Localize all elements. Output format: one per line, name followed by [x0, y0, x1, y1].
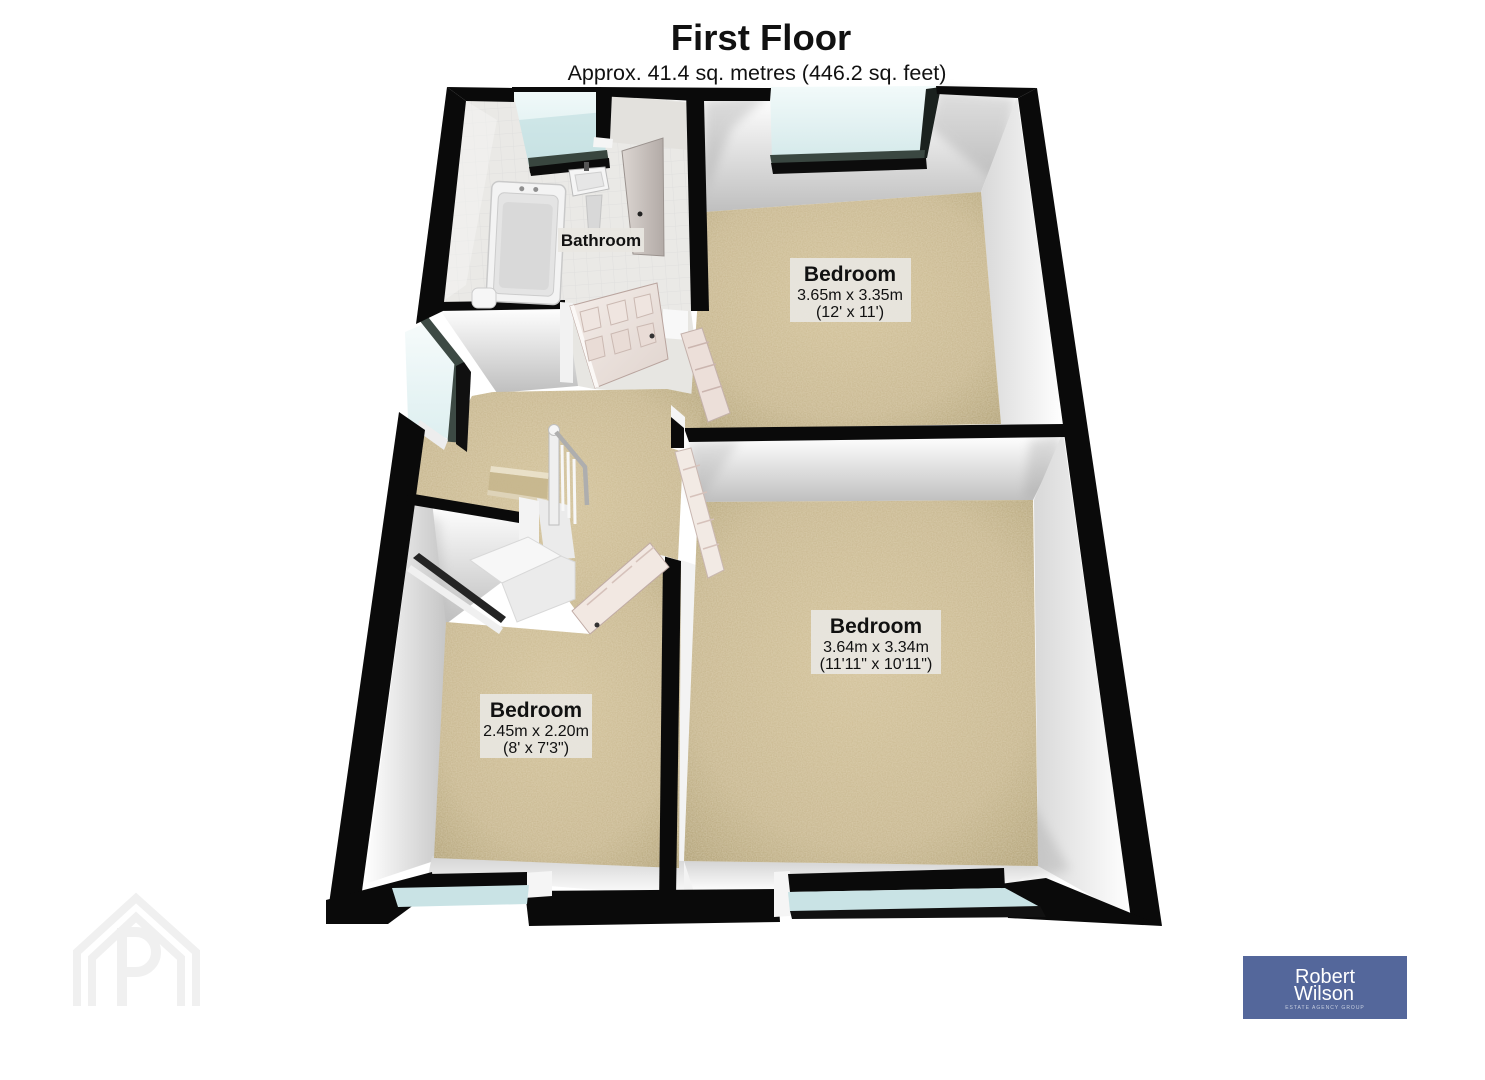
- svg-text:ESTATE AGENCY GROUP: ESTATE AGENCY GROUP: [1285, 1005, 1365, 1011]
- svg-text:2.45m x 2.20m: 2.45m x 2.20m: [483, 723, 589, 740]
- svg-text:(8' x 7'3"): (8' x 7'3"): [503, 740, 569, 757]
- svg-text:3.65m x 3.35m: 3.65m x 3.35m: [797, 287, 903, 304]
- svg-text:(11'11" x 10'11"): (11'11" x 10'11"): [820, 656, 933, 673]
- svg-text:Bedroom: Bedroom: [804, 263, 896, 286]
- svg-text:Bathroom: Bathroom: [561, 231, 641, 250]
- svg-text:Bedroom: Bedroom: [490, 699, 582, 722]
- svg-text:Bedroom: Bedroom: [830, 615, 922, 638]
- svg-text:Wilson: Wilson: [1294, 983, 1354, 1005]
- svg-text:(12' x 11'): (12' x 11'): [816, 304, 884, 321]
- svg-text:First Floor: First Floor: [671, 17, 851, 58]
- svg-text:Approx. 41.4 sq. metres (446.2: Approx. 41.4 sq. metres (446.2 sq. feet): [568, 61, 947, 85]
- svg-text:3.64m x 3.34m: 3.64m x 3.34m: [823, 639, 929, 656]
